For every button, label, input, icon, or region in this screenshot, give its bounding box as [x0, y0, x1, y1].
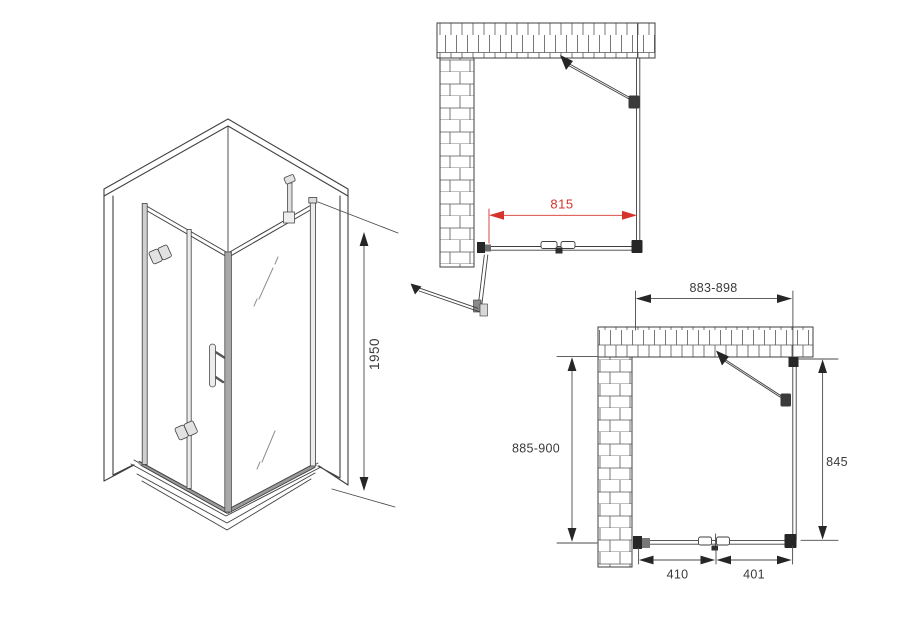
extension-line-bottom	[332, 489, 395, 507]
wall-top-section	[598, 327, 813, 357]
support-bar-bracket	[781, 394, 792, 407]
panel-width-label: 815	[550, 197, 573, 212]
door-handle	[210, 344, 226, 387]
overall-depth-dimension: 885-900	[512, 357, 597, 543]
panel-stile	[310, 202, 315, 466]
panel-width-dimension: 815	[489, 197, 637, 244]
corner-bracket	[632, 240, 643, 253]
drawing-canvas: 1950	[0, 0, 900, 636]
height-dimension: 1950	[318, 202, 398, 507]
door-segment-dimensions: 410 401	[639, 546, 793, 582]
panel-clamp-right	[561, 242, 575, 249]
corner-post	[225, 252, 232, 512]
wall-profile-bracket	[477, 242, 485, 253]
door-clamp-right	[717, 537, 730, 545]
stile-cap	[309, 198, 317, 204]
wall-profile-bracket-2	[642, 538, 650, 548]
door-leaf-1	[478, 255, 488, 305]
extension-line-top	[318, 202, 398, 233]
door-segment-left-label: 410	[667, 568, 689, 582]
fold-hinge-top	[148, 244, 172, 264]
side-plan-view: 883-898 885-900 845 410 40	[512, 281, 848, 582]
fixed-panel-line	[488, 242, 637, 254]
overall-depth-label: 885-900	[512, 442, 560, 456]
isometric-view: 1950	[104, 119, 398, 530]
arrow-down	[360, 477, 369, 491]
support-bar-bracket	[629, 96, 640, 109]
wall-profile-bracket-2	[485, 245, 491, 252]
arrow-left	[489, 211, 504, 220]
closed-bifold-door	[633, 534, 797, 551]
arrow-right	[622, 211, 637, 220]
height-dimension-label: 1950	[367, 338, 382, 370]
door-segment-right-label: 401	[743, 568, 765, 582]
inner-depth-dimension: 845	[799, 359, 848, 540]
fold-joint-block	[712, 546, 719, 551]
overall-width-label: 883-898	[690, 281, 738, 295]
support-rod	[284, 174, 296, 223]
inner-depth-label: 845	[826, 455, 848, 469]
wall-left-section	[440, 58, 474, 267]
door-leaf-2	[418, 288, 479, 312]
door-end-cap	[411, 284, 422, 295]
top-plan-view: 815	[411, 23, 656, 316]
glass-shine	[254, 257, 278, 469]
fold-post	[187, 230, 191, 489]
door-clamp-left	[699, 537, 712, 545]
wall-profile	[142, 204, 147, 465]
glass-panel-edge	[789, 357, 799, 540]
fixed-panel	[254, 174, 317, 469]
door-fold-hinge-2	[480, 304, 488, 316]
arrow-up	[360, 232, 369, 246]
wall-top-section	[437, 23, 655, 58]
bifold-door	[142, 204, 225, 489]
drawing-page: 1950	[0, 0, 900, 636]
support-bar	[716, 351, 791, 407]
panel-top-bracket	[789, 357, 799, 367]
fold-hinge-bottom	[174, 420, 198, 440]
panel-clamp-left	[541, 242, 557, 249]
wall-left-section	[598, 357, 632, 567]
clamp-joint	[556, 248, 563, 254]
corner-bracket	[785, 534, 797, 548]
wall-profile-bracket	[633, 536, 642, 549]
support-bar	[560, 55, 640, 109]
